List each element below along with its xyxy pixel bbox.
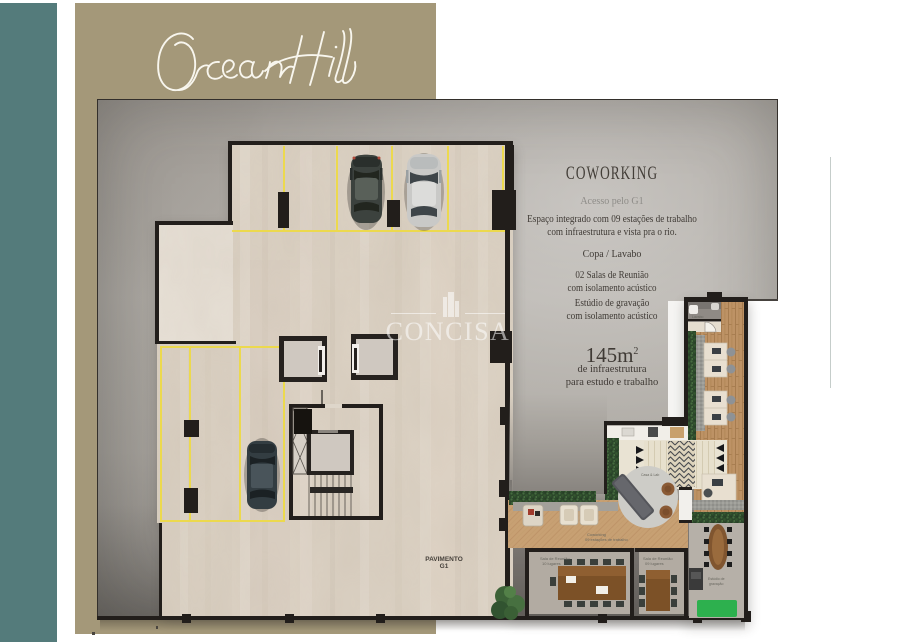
svg-text:PAVIMENTO: PAVIMENTO — [425, 556, 463, 563]
svg-text:10 lugares: 10 lugares — [542, 561, 561, 566]
svg-text:CONCISA: CONCISA — [386, 317, 511, 346]
svg-text:Estúdio de: Estúdio de — [708, 577, 725, 581]
svg-text:Casa & Lab: Casa & Lab — [641, 473, 659, 477]
svg-text:G1: G1 — [440, 563, 449, 570]
svg-text:Lavabo: Lavabo — [692, 315, 704, 319]
svg-text:09 estações de trabalho: 09 estações de trabalho — [585, 537, 628, 542]
svg-text:09 lugares: 09 lugares — [645, 561, 664, 566]
svg-text:gravação: gravação — [709, 582, 723, 586]
